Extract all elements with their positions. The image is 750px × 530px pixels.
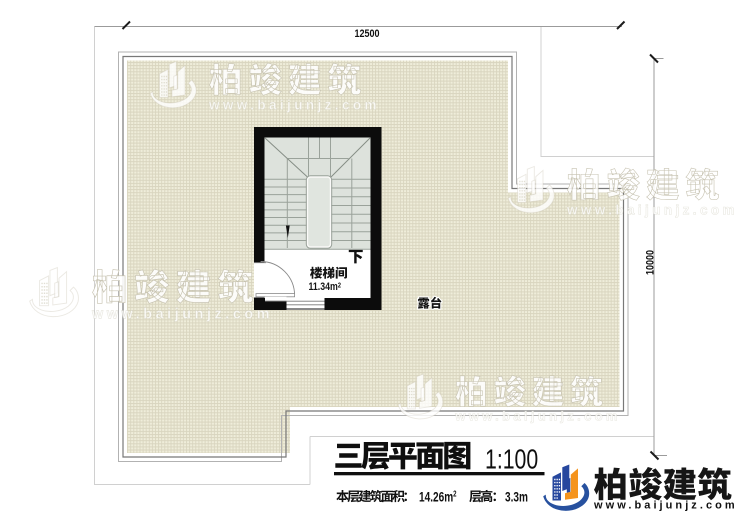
svg-text:12500: 12500 bbox=[354, 28, 379, 40]
svg-text:www.baijunjz.com: www.baijunjz.com bbox=[593, 500, 738, 512]
svg-text:3.3m: 3.3m bbox=[505, 489, 528, 505]
svg-text:www.baijunjz.com: www.baijunjz.com bbox=[208, 98, 380, 113]
svg-text:1:100: 1:100 bbox=[485, 444, 538, 476]
svg-text:www.baijunjz.com: www.baijunjz.com bbox=[454, 409, 621, 424]
svg-text:www.baijunjz.com: www.baijunjz.com bbox=[566, 203, 738, 218]
svg-text:11.34m2: 11.34m2 bbox=[308, 281, 341, 293]
svg-text:www.baijunjz.com: www.baijunjz.com bbox=[91, 306, 273, 322]
svg-text:14.26m2: 14.26m2 bbox=[419, 488, 457, 504]
svg-text:10000: 10000 bbox=[645, 250, 657, 275]
